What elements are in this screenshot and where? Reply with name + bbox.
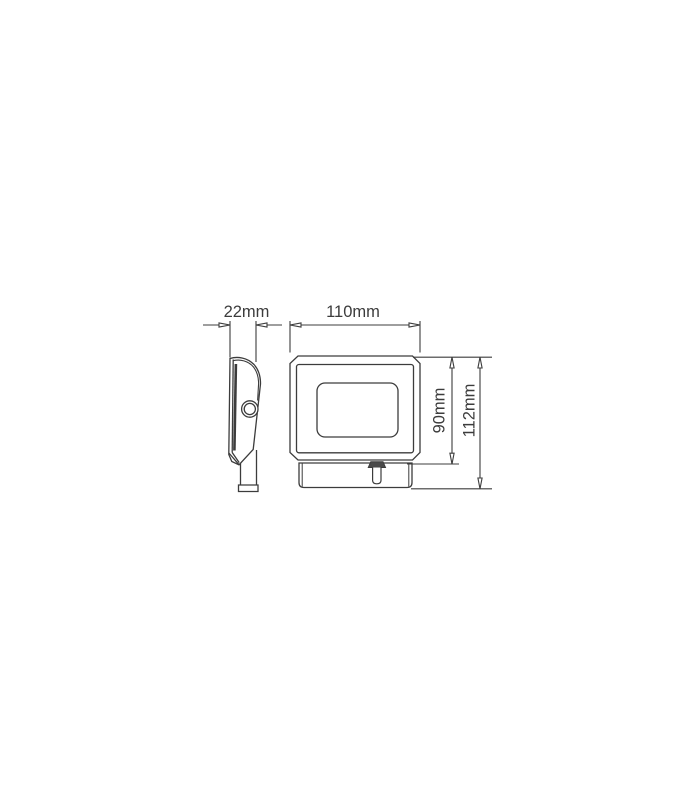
arrowhead-right-icon — [219, 323, 230, 327]
arrowhead-left-icon — [256, 323, 267, 327]
total-height-label: 112mm — [461, 384, 479, 438]
floodlight-dimension-drawing: 22mm 110mm 90mm 112mm — [0, 0, 700, 800]
arrowhead-up-icon — [478, 357, 482, 368]
arrowhead-up-icon — [450, 357, 454, 368]
extension-lines — [290, 321, 420, 353]
depth-label: 22mm — [224, 303, 270, 321]
body-height-label: 90mm — [431, 388, 449, 434]
arrowhead-down-icon — [450, 453, 454, 464]
arrowhead-left-icon — [290, 323, 301, 327]
width-label: 110mm — [326, 303, 380, 321]
arrowhead-right-icon — [409, 323, 420, 327]
drawing-svg: 22mm 110mm 90mm 112mm — [0, 0, 700, 800]
arrowhead-down-icon — [478, 478, 482, 489]
front-view — [290, 356, 420, 488]
side-view — [229, 357, 261, 491]
dimension-width — [290, 321, 420, 353]
side-glass-edge — [234, 364, 236, 451]
front-mounting-bracket — [299, 463, 412, 488]
extension-lines — [230, 321, 256, 362]
side-knob-icon — [242, 401, 258, 417]
dimension-depth — [203, 321, 282, 362]
led-window — [317, 383, 398, 437]
